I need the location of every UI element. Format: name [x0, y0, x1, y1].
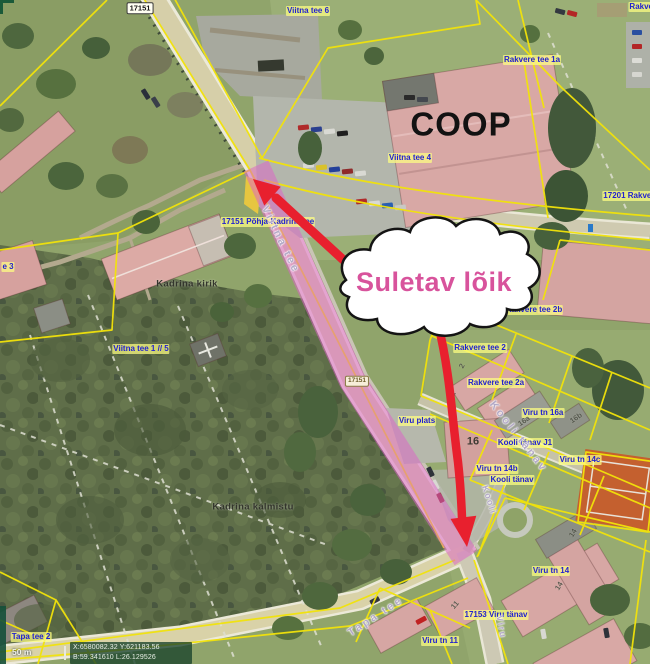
map-canvas[interactable]: 17151Viitna tee 6RakvereRakvere tee 1aVi…: [0, 0, 650, 664]
aerial-imagery: [0, 0, 650, 664]
